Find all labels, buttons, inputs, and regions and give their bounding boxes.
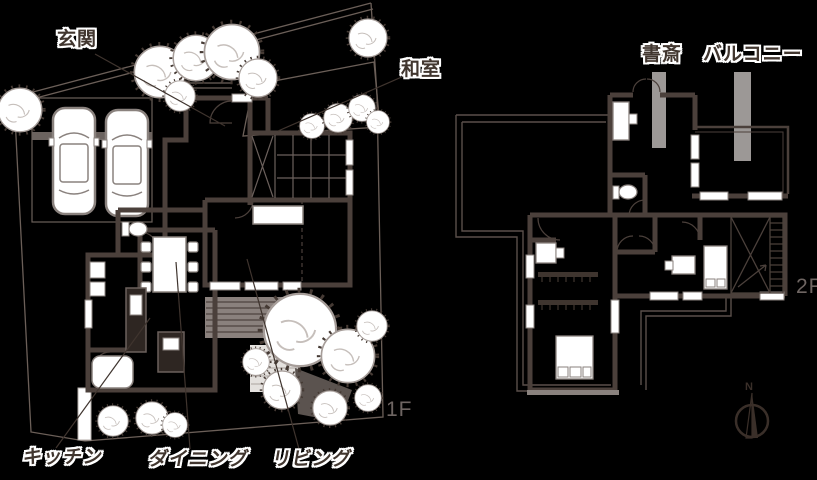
bathtub [92, 356, 133, 388]
label-floor-2f: 2F [796, 276, 817, 297]
balcony-label-bar [734, 72, 751, 161]
bedroom2-bed [704, 246, 727, 289]
car-right [102, 110, 152, 216]
label-floor-1f: 1F [386, 399, 413, 420]
garage [32, 98, 152, 222]
toilet-1f [122, 222, 147, 236]
stove [163, 338, 179, 350]
dining-table [153, 237, 186, 292]
tatami-room [252, 135, 348, 198]
bedroom2-desk [672, 256, 695, 274]
label-study: 書斎 [642, 45, 682, 64]
bedroom3-bed [556, 336, 593, 379]
study-label-bar [652, 72, 666, 148]
stairs [731, 217, 783, 293]
closet-hangers [538, 272, 598, 310]
kitchen-sink [130, 295, 142, 315]
label-entrance: 玄関 [57, 30, 97, 49]
floor1-plan [0, 3, 391, 441]
wall-band [527, 390, 619, 395]
floor2-plan [456, 72, 788, 438]
study-desk [613, 102, 629, 140]
compass-icon [736, 393, 768, 438]
car-left [49, 108, 99, 214]
label-balcony: バルコニー [703, 45, 803, 64]
label-japanese-room: 和室 [401, 60, 441, 79]
fridge-shelves [90, 262, 105, 296]
label-living: リビング [270, 450, 353, 469]
floor-plan-page: 玄関 和室 キッチン ダイニング リビング 書斎 バルコニー 1F 2F N [0, 0, 817, 480]
bedroom3-chair [556, 248, 564, 258]
bedroom2-chair [665, 261, 673, 270]
tv-board [253, 206, 303, 224]
label-compass-north: N [745, 382, 753, 393]
toilet-2f [613, 185, 637, 199]
bedroom3-desk [536, 243, 556, 263]
label-kitchen: キッチン [21, 448, 104, 467]
study-chair [629, 114, 637, 124]
label-dining: ダイニング [147, 450, 250, 469]
